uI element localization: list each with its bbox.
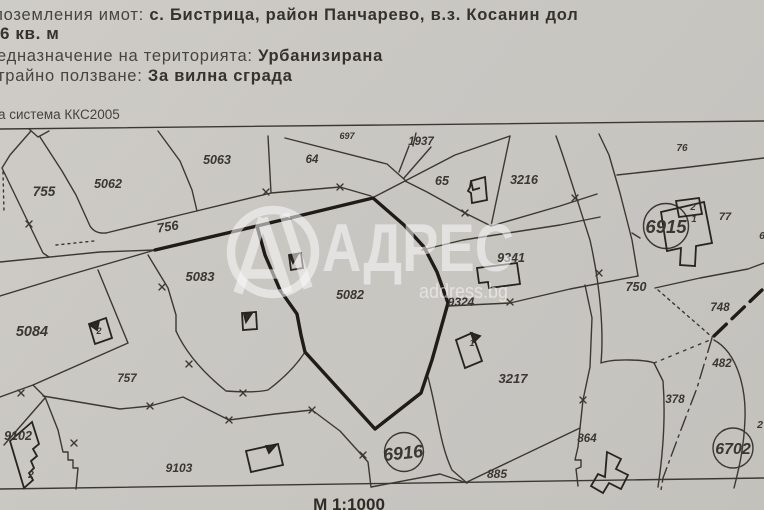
- svg-text:3217: 3217: [499, 371, 529, 386]
- svg-text:2: 2: [27, 470, 34, 481]
- svg-text:1: 1: [691, 214, 696, 225]
- svg-text:9103: 9103: [166, 461, 193, 475]
- svg-text:6: 6: [759, 230, 764, 242]
- svg-text:1937: 1937: [408, 136, 434, 148]
- svg-text:697: 697: [339, 131, 355, 141]
- svg-text:поземления имот: с. Бистрица,: поземления имот: с. Бистрица, район Панч…: [0, 6, 578, 24]
- svg-text:а система ККС2005: а система ККС2005: [0, 107, 120, 122]
- svg-text:1: 1: [469, 338, 474, 348]
- svg-text:АДРЕС: АДРЕС: [322, 210, 514, 286]
- svg-text:2: 2: [756, 419, 763, 431]
- svg-text:5062: 5062: [94, 177, 122, 191]
- svg-text:77: 77: [719, 211, 732, 223]
- svg-text:5083: 5083: [186, 269, 216, 284]
- svg-text:address.bg: address.bg: [419, 280, 508, 303]
- svg-text:378: 378: [665, 394, 685, 406]
- svg-text:5084: 5084: [16, 324, 48, 340]
- svg-text:65: 65: [435, 174, 450, 188]
- svg-text:5082: 5082: [336, 288, 364, 302]
- svg-text:2: 2: [689, 202, 696, 213]
- svg-text:755: 755: [33, 184, 56, 199]
- svg-text:6915: 6915: [645, 216, 687, 237]
- svg-text:6916: 6916: [382, 441, 425, 465]
- svg-text:885: 885: [487, 467, 507, 481]
- svg-text:64: 64: [306, 154, 319, 166]
- svg-text:482: 482: [711, 358, 732, 370]
- svg-text:46 кв. м: 46 кв. м: [0, 24, 59, 43]
- svg-text:2: 2: [95, 326, 101, 336]
- svg-text:757: 757: [117, 373, 137, 385]
- svg-text:748: 748: [710, 302, 730, 314]
- svg-text:750: 750: [626, 280, 647, 294]
- svg-text:756: 756: [156, 217, 181, 235]
- svg-text:9102: 9102: [4, 429, 32, 443]
- svg-text:5063: 5063: [203, 153, 231, 167]
- svg-text:864: 864: [577, 433, 597, 445]
- svg-text:М 1:1000: М 1:1000: [313, 495, 385, 510]
- svg-text:трайно ползване: За вилна сгра: трайно ползване: За вилна сграда: [0, 67, 293, 85]
- svg-text:6702: 6702: [715, 441, 751, 458]
- svg-text:76: 76: [676, 143, 688, 154]
- svg-text:едназначение на територията: У: едназначение на територията: Урбанизиран…: [0, 47, 383, 65]
- svg-text:3216: 3216: [510, 173, 539, 187]
